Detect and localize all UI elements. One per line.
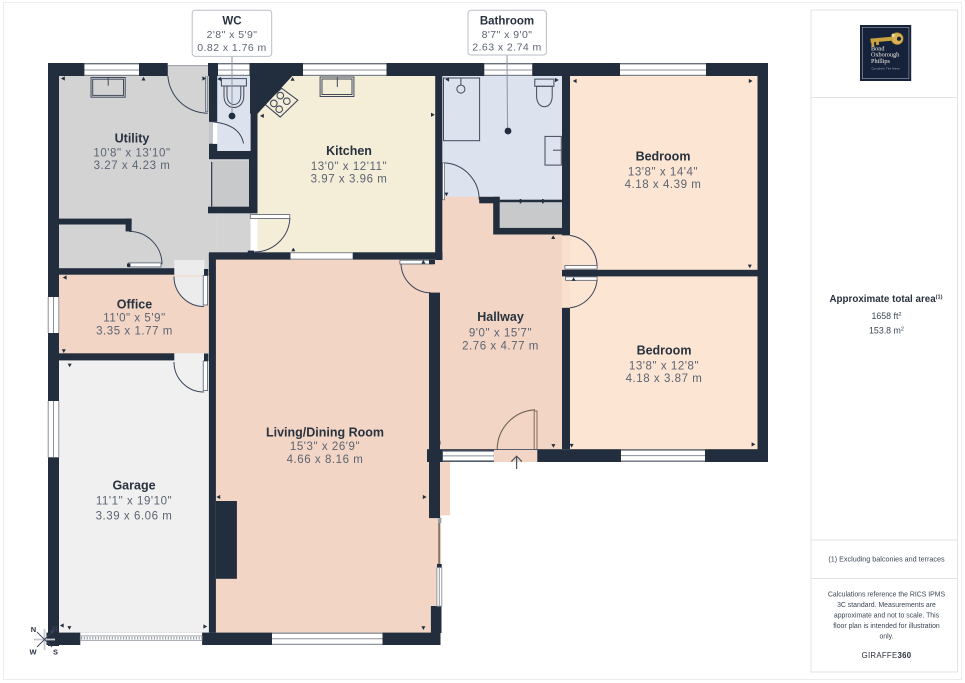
svg-text:Hallway: Hallway [477,310,524,324]
svg-text:N: N [31,625,36,634]
svg-text:Bathroom: Bathroom [480,16,534,28]
svg-text:4.18 x 3.87 m: 4.18 x 3.87 m [626,373,703,385]
svg-text:2.76 x 4.77 m: 2.76 x 4.77 m [462,341,539,353]
svg-text:Kitchen: Kitchen [326,144,372,158]
svg-text:0.82 x 1.76 m: 0.82 x 1.76 m [197,42,266,54]
svg-text:15'3" x 26'9": 15'3" x 26'9" [290,441,360,453]
svg-text:8'7" x 9'0": 8'7" x 9'0" [482,29,533,41]
svg-text:approximate and not to scale.: approximate and not to scale. This [834,613,940,620]
svg-text:Garage: Garage [112,479,155,493]
svg-text:9'0" x 15'7": 9'0" x 15'7" [469,328,532,340]
svg-text:3.39 x 6.06 m: 3.39 x 6.06 m [96,511,173,523]
svg-text:4.18 x 4.39 m: 4.18 x 4.39 m [625,179,702,191]
svg-text:Approximate total area(1): Approximate total area(1) [829,294,942,305]
svg-text:Living/Dining Room: Living/Dining Room [266,426,384,440]
svg-text:2.63 x 2.74 m: 2.63 x 2.74 m [472,42,541,54]
svg-text:(1) Excluding balconies and te: (1) Excluding balconies and terraces [828,555,945,564]
svg-text:3.27 x 4.23 m: 3.27 x 4.23 m [94,160,171,172]
svg-text:WC: WC [222,16,241,28]
svg-text:Calculations reference the RIC: Calculations reference the RICS IPMS [828,592,946,599]
svg-text:10'8" x 13'10": 10'8" x 13'10" [93,148,170,160]
svg-text:11'0" x 5'9": 11'0" x 5'9" [103,313,165,325]
svg-text:Bedroom: Bedroom [637,344,692,358]
svg-text:3.35 x 1.77 m: 3.35 x 1.77 m [96,326,173,338]
svg-text:only.: only. [879,634,893,641]
svg-text:4.66 x 8.16 m: 4.66 x 8.16 m [287,454,364,466]
svg-text:1658 ft2: 1658 ft2 [871,311,901,321]
svg-text:13'0" x 12'11": 13'0" x 12'11" [311,161,387,173]
svg-text:153.8 m2: 153.8 m2 [869,326,904,336]
svg-text:S: S [53,648,58,657]
svg-text:11'1" x 19'10": 11'1" x 19'10" [96,496,172,508]
svg-text:W: W [29,648,37,657]
svg-text:GIRAFFE360: GIRAFFE360 [862,651,912,660]
svg-text:13'8" x 14'4": 13'8" x 14'4" [628,167,698,179]
svg-text:floor plan is intended for ill: floor plan is intended for illustration [833,623,940,630]
svg-text:Office: Office [117,298,152,312]
svg-text:3.97 x 3.96 m: 3.97 x 3.96 m [311,174,388,186]
svg-text:Phillips: Phillips [871,58,891,65]
svg-text:Utility: Utility [115,132,150,146]
svg-text:2'8" x 5'9": 2'8" x 5'9" [207,29,258,41]
svg-text:13'8" x 12'8": 13'8" x 12'8" [629,361,699,373]
svg-text:3C standard. Measurements are: 3C standard. Measurements are [837,602,936,609]
svg-text:Complete The Move: Complete The Move [872,67,901,71]
svg-text:Bedroom: Bedroom [636,150,691,164]
